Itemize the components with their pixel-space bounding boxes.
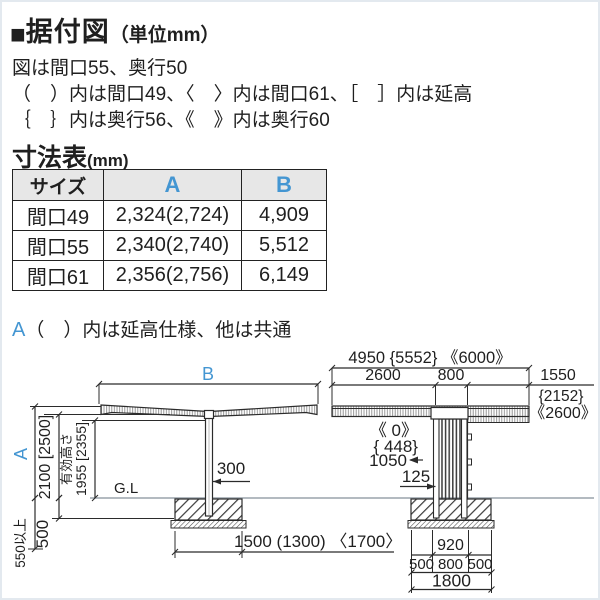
eff-height-label: 有効高さ — [59, 433, 74, 485]
inset-label: 125 — [402, 467, 430, 486]
cell-b-55: 5,512 — [242, 231, 327, 261]
legend-notes: 図は間口55、奥行50 （ ）内は間口49、〈 〉内は間口61、［ ］内は延高 … — [12, 56, 472, 134]
table-row: 間口55 2,340(2,740) 5,512 — [13, 231, 327, 261]
seg-post-label: 800 — [438, 367, 465, 384]
post-bolt-1 — [468, 434, 472, 440]
dim-b-label: B — [202, 364, 214, 384]
col-a: A — [104, 170, 242, 201]
post-bolt-2 — [468, 459, 472, 465]
post-width-label: 300 — [217, 459, 245, 478]
title-text: 据付図 — [26, 17, 110, 47]
table-row: 間口61 2,356(2,756) 6,149 — [13, 261, 327, 291]
note-line-3: ｛ ｝内は奥行56、《 》内は奥行60 — [12, 108, 472, 134]
ground-label: G.L — [114, 480, 138, 497]
bolt-span-label: 920 — [437, 537, 464, 554]
seg-rear-alt2-label: 《2600》 — [529, 405, 597, 422]
table-row: 間口49 2,324(2,724) 4,909 — [13, 201, 327, 231]
table-heading-unit: (mm) — [87, 151, 129, 170]
installation-diagram-page: ■据付図（単位mm） 図は間口55、奥行50 （ ）内は間口49、〈 〉内は間口… — [0, 0, 600, 600]
roof-right-wing — [210, 405, 317, 417]
cell-size-55: 間口55 — [13, 231, 104, 261]
anchor-leg-front — [434, 419, 440, 518]
side-foundation-block — [411, 499, 491, 520]
eff-height-value: 1955 [2355] — [73, 422, 89, 496]
cell-size-61: 間口61 — [13, 261, 104, 291]
seg-rear-alt1-label: {2152} — [539, 388, 584, 405]
side-roof-rear-strip — [468, 417, 530, 423]
cell-b-49: 4,909 — [242, 201, 327, 231]
side-view: 4950 {5552} 《6000》 2600 800 1550 {2152} … — [329, 348, 597, 593]
found-depth-label: 500 — [33, 520, 52, 548]
side-total-label: 4950 {5552} 《6000》 — [348, 348, 511, 367]
side-post-cap — [431, 408, 468, 420]
dim-a-label: A — [11, 448, 31, 460]
seg-rear-label: 1550 — [540, 367, 576, 384]
title-unit: （単位mm） — [110, 25, 220, 46]
technical-drawings: B A 2100 [2500] 有効高さ 1955 [2355] — [2, 337, 600, 600]
roof-post-cap — [205, 411, 214, 419]
title-square-icon: ■ — [10, 19, 26, 49]
offset-arrow-icon — [409, 457, 418, 464]
note-line-2: （ ）内は間口49、〈 〉内は間口61、［ ］内は延高 — [12, 82, 472, 108]
cell-a-55: 2,340(2,740) — [104, 231, 242, 261]
found-width-label: 1500 (1300) 〈1700〉 — [234, 532, 402, 551]
cell-a-49: 2,324(2,724) — [104, 201, 242, 231]
gravel-base — [171, 521, 246, 529]
found-seg1-label: 500 — [409, 556, 434, 573]
cell-a-61: 2,356(2,756) — [104, 261, 242, 291]
seg-front-label: 2600 — [365, 367, 401, 384]
embed-min-label: 550以上 — [13, 518, 28, 568]
note-line-1: 図は間口55、奥行50 — [12, 56, 472, 82]
front-view: B A 2100 [2500] 有効高さ 1955 [2355] — [11, 364, 402, 568]
found-seg3-label: 500 — [467, 556, 492, 573]
col-b: B — [242, 170, 327, 201]
anchor-leg-rear — [462, 419, 468, 518]
cell-b-61: 6,149 — [242, 261, 327, 291]
col-size: サイズ — [13, 170, 104, 201]
height-main-label: 2100 [2500] — [37, 415, 54, 500]
table-heading-text: 寸法表 — [12, 144, 87, 172]
found-total-label: 1800 — [432, 571, 471, 591]
page-title: ■据付図（単位mm） — [10, 10, 220, 50]
cell-size-49: 間口49 — [13, 201, 104, 231]
side-gravel-base — [408, 521, 494, 529]
dimension-table: サイズ A B 間口49 2,324(2,724) 4,909 間口55 2,3… — [12, 169, 327, 291]
post-bolt-3 — [468, 484, 472, 490]
table-header-row: サイズ A B — [13, 170, 327, 201]
